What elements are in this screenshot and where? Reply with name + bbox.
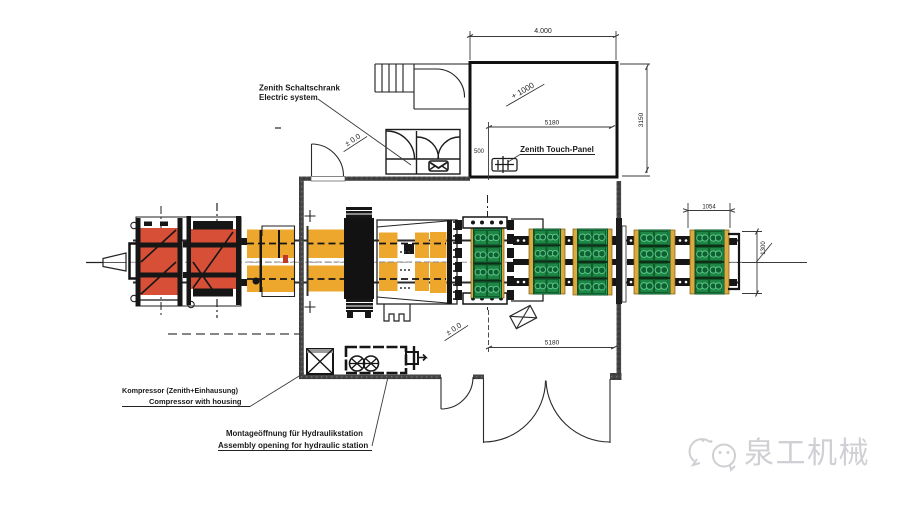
svg-text:4.000: 4.000	[534, 28, 552, 35]
svg-text:500: 500	[474, 149, 485, 155]
svg-text:1300: 1300	[761, 241, 767, 255]
svg-text:泉工机械: 泉工机械	[744, 437, 870, 470]
svg-text:Zenith Touch-Panel: Zenith Touch-Panel	[520, 145, 594, 154]
svg-text:3150: 3150	[638, 112, 645, 127]
svg-text:1054: 1054	[702, 205, 716, 211]
svg-text:Zenith Schaltschrank: Zenith Schaltschrank	[259, 84, 340, 93]
svg-text:Compressor with housing: Compressor with housing	[149, 397, 242, 406]
svg-text:Assembly opening for hydraulic: Assembly opening for hydraulic station	[218, 441, 368, 450]
svg-text:5180: 5180	[545, 120, 560, 127]
svg-text:5180: 5180	[545, 340, 560, 347]
svg-text:Kompressor (Zenith+Einhausung): Kompressor (Zenith+Einhausung)	[122, 386, 239, 395]
svg-text:Electric system: Electric system	[259, 93, 318, 102]
svg-text:Montageöffnung für Hydraulikst: Montageöffnung für Hydraulikstation	[226, 429, 363, 438]
